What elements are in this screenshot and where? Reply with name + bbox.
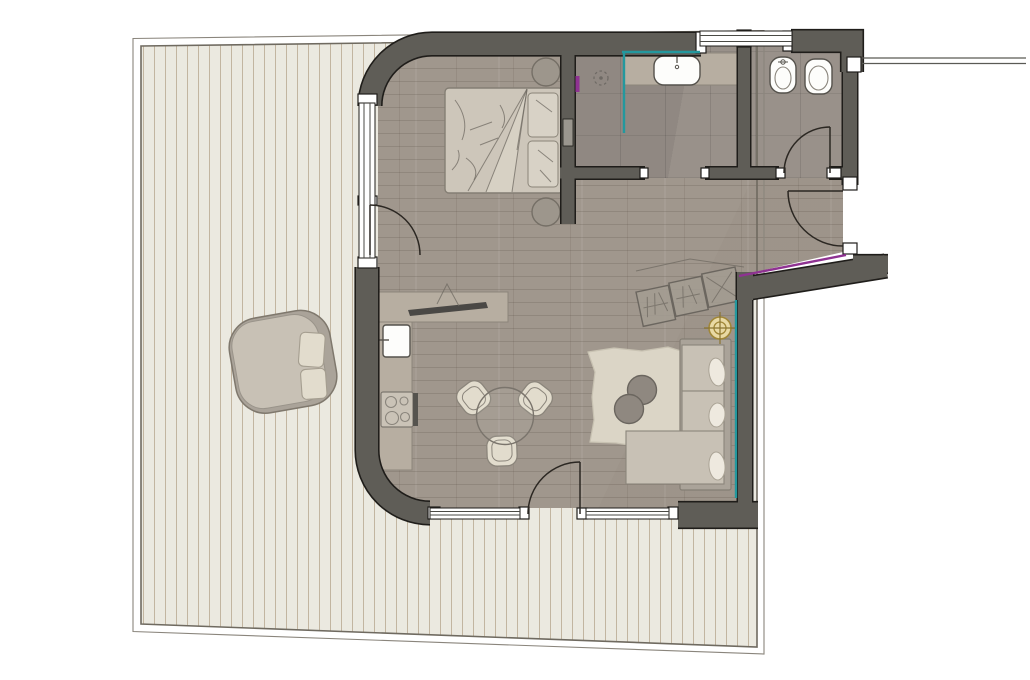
lounge-cushion: [300, 368, 327, 400]
bidet: [770, 57, 796, 93]
door-wc: [784, 127, 830, 173]
window-top: [700, 31, 792, 46]
bed: [445, 88, 563, 193]
floor-plan-canvas: [0, 0, 1030, 680]
toilet: [805, 59, 832, 94]
cooktop: [381, 392, 418, 427]
bed-pillow: [528, 141, 558, 187]
dining-table: [477, 388, 534, 445]
plan-drawing: [0, 0, 1030, 680]
door-terrace-living: [528, 462, 580, 514]
property-boundary-line: [862, 58, 1026, 64]
wall-marker-purple-tick: [576, 76, 580, 92]
outdoor-lounge-chair: [224, 306, 341, 418]
lounge-cushion: [298, 332, 325, 368]
window-left: [359, 103, 375, 258]
door-terrace-bedroom: [370, 205, 420, 255]
window-bottom: [430, 508, 669, 519]
partition-niche: [563, 119, 573, 146]
wardrobe: [635, 267, 743, 326]
coffee-table-small: [615, 395, 644, 424]
nightstand-top: [532, 58, 560, 86]
bed-pillow: [528, 93, 558, 137]
shower-drain: [594, 71, 608, 85]
dining-table-group: [453, 377, 557, 467]
door-entry: [788, 191, 843, 246]
nightstand-bottom: [532, 198, 560, 226]
bathroom-sink: [654, 54, 700, 85]
